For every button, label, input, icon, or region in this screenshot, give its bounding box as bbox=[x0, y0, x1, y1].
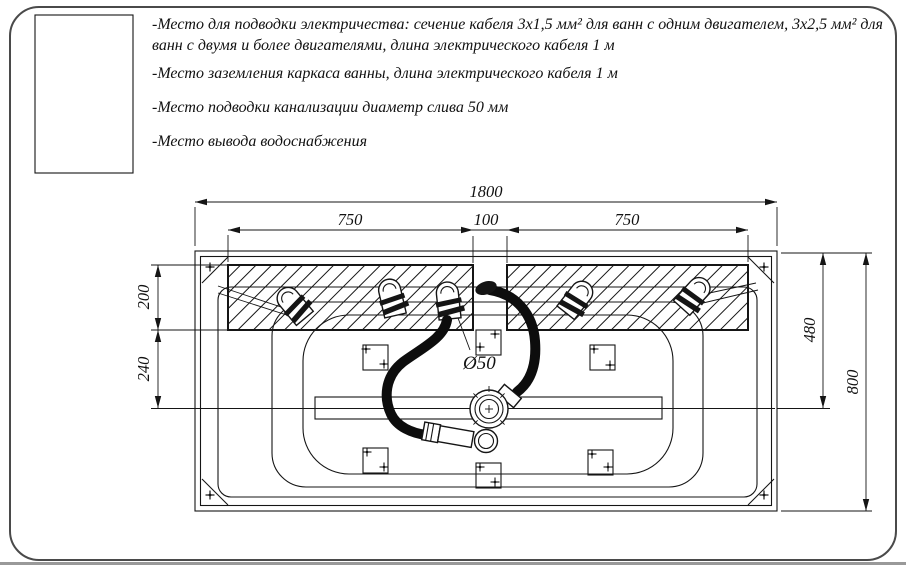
mount-square bbox=[476, 463, 502, 489]
dim-label-100: 100 bbox=[474, 210, 500, 229]
dim-label-750-left: 750 bbox=[338, 210, 364, 229]
dim-label-800: 800 bbox=[843, 369, 862, 395]
hatch-zone-right bbox=[507, 265, 748, 330]
siphon-outlet-pipe bbox=[422, 422, 474, 448]
dim-zone-height: 200 bbox=[134, 265, 230, 330]
dim-label-750-right: 750 bbox=[615, 210, 641, 229]
blueprint-page: -Место для подводки электричества: сечен… bbox=[0, 0, 906, 566]
dim-zone-to-drain: 240 bbox=[134, 330, 197, 409]
bottom-edge-bar bbox=[0, 562, 906, 565]
connection-zone-hatch bbox=[228, 265, 748, 330]
mount-square bbox=[363, 448, 389, 474]
dim-label-200: 200 bbox=[134, 284, 153, 310]
mount-square bbox=[476, 330, 502, 356]
dim-overall-depth: 800 bbox=[781, 253, 872, 511]
dim-label-1800: 1800 bbox=[470, 182, 504, 201]
dim-label-drain-diameter: Ø50 bbox=[462, 353, 496, 374]
mount-square bbox=[590, 345, 616, 371]
corrugated-hose-left bbox=[387, 320, 447, 435]
mount-square bbox=[362, 345, 389, 371]
dim-label-240: 240 bbox=[134, 356, 153, 382]
mount-square bbox=[588, 450, 614, 476]
dim-label-480: 480 bbox=[800, 317, 819, 343]
dim-jet-spans: 750 100 750 bbox=[228, 210, 748, 263]
technical-drawing: 1800 750 100 750 200 bbox=[0, 0, 906, 566]
legend-hatch-swatch bbox=[35, 15, 133, 173]
